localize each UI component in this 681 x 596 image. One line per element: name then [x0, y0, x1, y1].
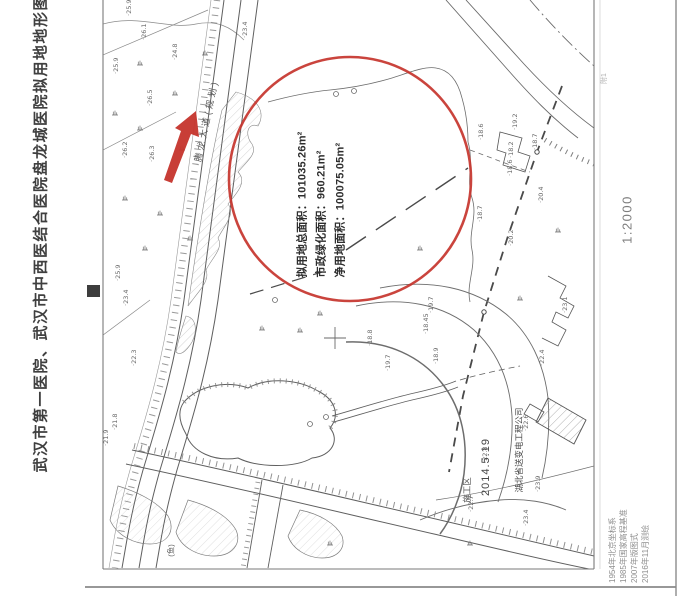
grass-symbol [259, 326, 265, 330]
company-label: 湖北省送变电工程公司 [513, 404, 525, 496]
spot-elevation-label: ·23.4 [122, 289, 130, 306]
construction-area-label: 施工区 [461, 475, 473, 505]
grid-cross [324, 327, 346, 349]
annotation-line-total-area: 拟用地总面积：101035.26m² [294, 108, 313, 278]
spot-elevation-label: ·25.9 [125, 0, 133, 16]
grass-symbol [137, 61, 143, 65]
field-date-label: 2014.5.19 [480, 438, 492, 496]
spot-elevation-label: ·23.4 [522, 509, 530, 526]
survey-note-symbology: 2007年版图式 [629, 487, 640, 583]
spot-elevation-label: ·20.4 [537, 186, 545, 203]
spot-elevation-label: ·18.7 [531, 133, 539, 150]
grass-symbol [317, 311, 323, 315]
spot-elevation-label: ·19.2 [511, 113, 519, 130]
spot-elevation-label: ·23.4 [241, 21, 249, 38]
grass-symbol [417, 246, 423, 250]
spot-elevation-label: ·18.8 [366, 329, 374, 346]
spot-elevation-label: ·18.6 [506, 159, 514, 176]
annotation-line-net-area: 净用地面积：100075.05m² [332, 108, 351, 278]
grass-symbol [297, 328, 303, 332]
sheet-number-label: 附1 [599, 60, 609, 84]
spot-elevation-label: ·22.4 [538, 349, 546, 366]
spot-elevation-label: ·20.2 [507, 229, 515, 246]
scanned-topographic-map-page: ·25.9·26.1·25.9·26.5·26.2·26.3·24.8·23.4… [0, 0, 681, 596]
central-pond [180, 366, 520, 466]
spot-elevation-label: ·21.8 [111, 413, 119, 430]
branch-road-south [243, 480, 283, 568]
site-boundary-dashes [250, 168, 468, 294]
survey-notes-block: 1954年北京坐标系 1985年国家高程基准 2007年版图式 2016年11月… [607, 487, 651, 583]
spot-elevation-label: ·26.3 [148, 145, 156, 162]
map-scale-label: 1:2000 [620, 187, 635, 253]
buildings [497, 132, 586, 444]
spot-elevation-label: ·18.7 [476, 205, 484, 222]
spot-elevation-label: ·18.9 [432, 347, 440, 364]
spot-elevation-label: ·18.6 [477, 123, 485, 140]
grass-symbol [112, 111, 118, 115]
annotation-line-green-area: 市政绿化面积：960.21m² [313, 108, 332, 278]
planned-avenue-road [109, 0, 258, 568]
grass-symbol [157, 211, 163, 215]
spot-elevation-label: ·23.1 [561, 296, 569, 313]
spot-elevation-label: ·26.1 [140, 23, 148, 40]
spot-elevation-label: ·26.2 [121, 141, 129, 158]
grass-symbol [142, 246, 148, 250]
fish-pond-label: (鱼) [166, 539, 177, 563]
grass-symbol [555, 228, 561, 232]
spot-elevation-label: ·19.7 [384, 354, 392, 371]
fish-ponds [110, 486, 343, 558]
building-under-construction [536, 398, 586, 444]
map-title: 武汉市第一医院、武汉市中西医结合医院盘龙城医院拟用地地形图 [30, 3, 51, 473]
spot-elevation-label: ·18.45 [422, 313, 430, 334]
spot-elevation-label: ·26.5 [146, 89, 154, 106]
survey-note-date: 2016年11月测绘 [640, 487, 651, 583]
spot-elevation-label: ·19.7 [427, 296, 435, 313]
survey-note-elevation: 1985年国家高程基准 [618, 487, 629, 583]
survey-note-datum: 1954年北京坐标系 [607, 487, 618, 583]
grass-symbol [122, 196, 128, 200]
grass-symbol [202, 51, 208, 55]
spot-elevation-label: ·25.9 [114, 264, 122, 281]
solid-building-symbol [87, 285, 100, 297]
map-frame [103, 0, 600, 569]
spot-elevation-label: ·23.9 [534, 475, 542, 492]
spot-elevation-label: ·25.9 [112, 57, 120, 74]
spot-elevation-label: ·18.2 [507, 141, 515, 158]
topographic-map-canvas: ·25.9·26.1·25.9·26.5·26.2·26.3·24.8·23.4… [0, 0, 681, 596]
grass-symbol [517, 296, 523, 300]
spot-elevation-label: ·24.8 [171, 43, 179, 60]
grass-symbol [172, 91, 178, 95]
land-area-annotation: 拟用地总面积：101035.26m² 市政绿化面积：960.21m² 净用地面积… [294, 108, 351, 278]
spot-elevation-label: ·22.3 [130, 349, 138, 366]
